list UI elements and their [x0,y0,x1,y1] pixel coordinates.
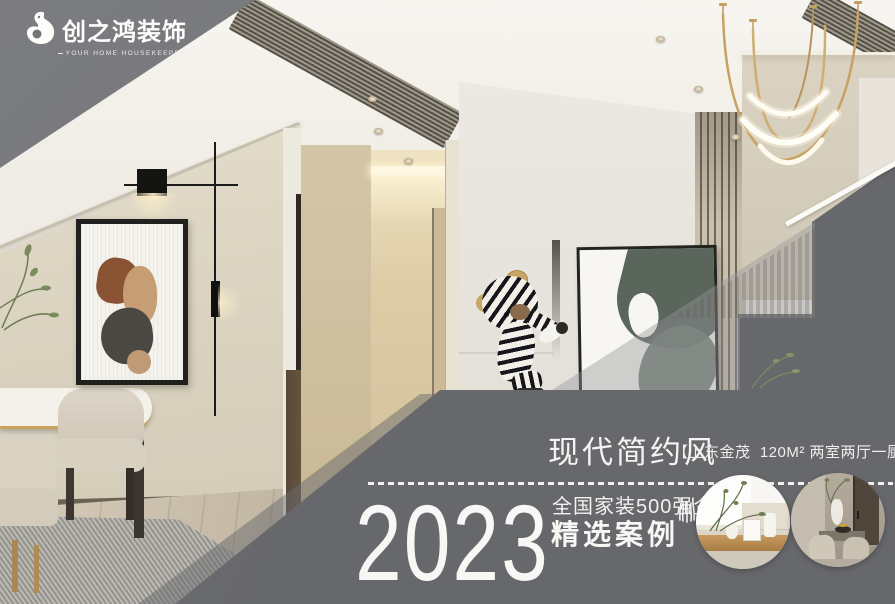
wall-art-abstract [76,219,188,385]
chair-gold-leg [12,540,18,592]
tagline-dash [58,53,63,54]
window-plant-sprig [746,342,802,390]
poster-canvas: 创之鸿装饰 YOUR HOME HOUSEKEEPER 现代简约风 【上东金茂 … [0,0,895,604]
plant-branches [0,238,70,333]
striped-bear-figurine [476,270,568,396]
brand-tagline-row: YOUR HOME HOUSEKEEPER [58,50,194,57]
plant-branches [700,477,772,533]
door-handle [857,511,859,519]
dark-bowl [835,526,851,533]
dining-chair [54,438,146,472]
project-info: 【上东金茂 120M² 两室两厅一厨两卫】 [673,445,895,460]
brand-logo: 创之鸿装饰 YOUR HOME HOUSEKEEPER [24,11,194,57]
dining-chair [0,420,56,492]
tagline-dash [189,53,194,54]
art-shape [127,350,151,374]
chair-leg [126,468,134,520]
chair-gold-leg [34,545,39,593]
bear-shoe [556,322,568,334]
lamp-glow [218,283,242,323]
spotlight [368,96,377,102]
spotlight [374,128,383,134]
thumbnail-tea-table [696,475,790,569]
fruit [838,524,848,527]
lamp-glow [128,193,178,221]
dining-chair [0,488,58,526]
corridor-cove-light [371,166,445,175]
floor [791,559,885,567]
laurel-sprig-icon [677,494,697,524]
wall-lamp [137,169,167,196]
chair-leg [66,468,74,520]
swan-bird-icon [24,11,58,47]
spotlight [404,158,413,164]
award-line-2: 精选案例 [551,521,679,549]
brand-tagline: YOUR HOME HOUSEKEEPER [66,50,187,57]
bear-eye [504,312,509,317]
white-vase [831,499,843,525]
thumbnail-dining-room [791,473,885,567]
brand-name: 创之鸿装饰 [62,12,187,47]
floor [696,551,790,569]
spotlight [656,36,665,42]
year-headline: 2023 [355,489,550,597]
